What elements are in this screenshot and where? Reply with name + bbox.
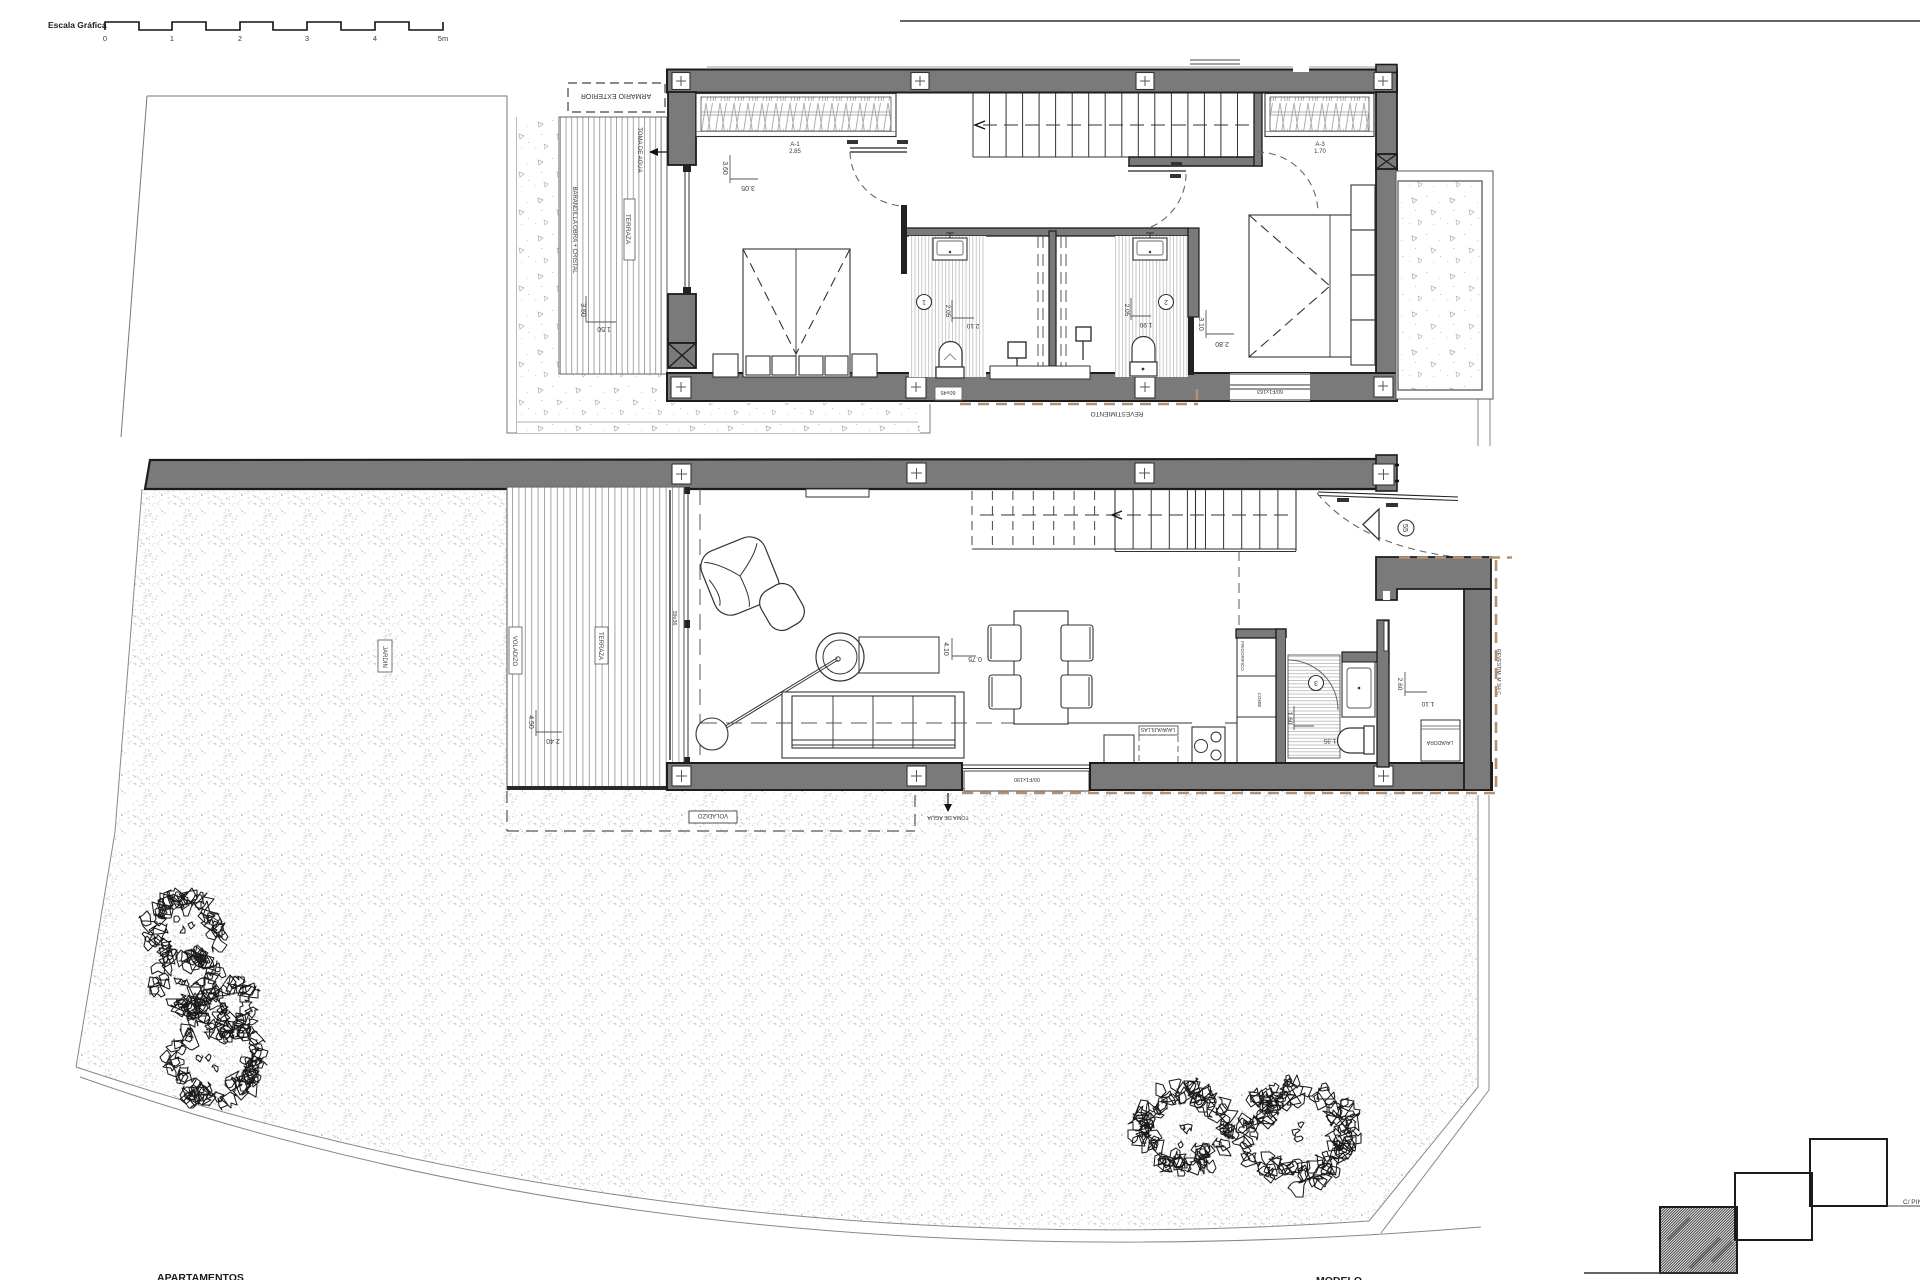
svg-text:0.75: 0.75 (968, 655, 982, 662)
svg-text:55: 55 (1401, 524, 1410, 532)
svg-text:VOLADIZO: VOLADIZO (511, 636, 517, 667)
svg-text:TERRAZA: TERRAZA (624, 214, 631, 245)
svg-text:4.50: 4.50 (527, 715, 534, 729)
svg-text:2.40: 2.40 (546, 737, 560, 744)
svg-text:0: 0 (103, 34, 107, 43)
svg-text:1.35: 1.35 (1323, 737, 1336, 744)
svg-text:2.85: 2.85 (789, 149, 801, 155)
svg-text:2.05: 2.05 (1123, 304, 1130, 317)
svg-text:5m: 5m (438, 34, 448, 43)
svg-text:1.60: 1.60 (1286, 712, 1293, 725)
svg-text:2: 2 (238, 34, 242, 43)
svg-text:APARTAMENTOS: APARTAMENTOS (157, 1272, 244, 1280)
svg-text:3.60: 3.60 (579, 303, 586, 317)
svg-text:1: 1 (170, 34, 174, 43)
svg-text:3.05: 3.05 (741, 184, 755, 191)
svg-text:2.60: 2.60 (1396, 678, 1403, 691)
svg-text:A-1: A-1 (790, 142, 800, 148)
svg-text:LAVAVAJILLAS: LAVAVAJILLAS (1140, 726, 1175, 732)
svg-text:1.50: 1.50 (597, 325, 611, 332)
svg-text:C/ PINAR: C/ PINAR (1903, 1199, 1920, 1206)
svg-text:A-3: A-3 (1315, 142, 1325, 148)
svg-text:4.10: 4.10 (942, 642, 949, 656)
svg-text:COMBI: COMBI (1257, 693, 1262, 708)
svg-text:TERRAZA: TERRAZA (597, 632, 603, 660)
svg-text:VOLADIZO: VOLADIZO (697, 812, 728, 818)
svg-text:ARMARIO EXTERIOR: ARMARIO EXTERIOR (581, 92, 651, 99)
svg-text:1.70: 1.70 (1314, 149, 1326, 155)
svg-text:39x36: 39x36 (671, 611, 677, 626)
svg-text:3: 3 (305, 34, 309, 43)
svg-text:3.60: 3.60 (721, 161, 728, 175)
svg-text:2.10: 2.10 (966, 322, 979, 329)
svg-text:4: 4 (373, 34, 377, 43)
svg-text:2.80: 2.80 (1215, 340, 1229, 347)
svg-text:60x45: 60x45 (941, 389, 956, 395)
svg-text:3: 3 (1314, 679, 1318, 686)
svg-text:60/F1x163: 60/F1x163 (1257, 388, 1283, 394)
svg-text:LAVADORA: LAVADORA (1426, 739, 1453, 745)
svg-text:MODELO: MODELO (1316, 1275, 1362, 1280)
svg-text:3.10: 3.10 (1197, 317, 1204, 331)
svg-text:REVESTIMIENTO: REVESTIMIENTO (1091, 410, 1144, 417)
svg-text:JARDIN: JARDIN (381, 646, 387, 668)
svg-text:1.90: 1.90 (1139, 321, 1152, 328)
svg-text:1: 1 (922, 298, 926, 305)
svg-text:BARANDILLA OBRA + CRISTAL: BARANDILLA OBRA + CRISTAL (571, 186, 577, 274)
svg-text:Escala Gráfica: Escala Gráfica (48, 20, 107, 30)
svg-text:1.10: 1.10 (1421, 700, 1434, 707)
svg-text:FRIGORIFICO: FRIGORIFICO (1240, 641, 1245, 671)
svg-text:2: 2 (1164, 298, 1168, 305)
svg-text:TOMA DE AGUA: TOMA DE AGUA (927, 814, 969, 820)
svg-text:00/F1x190: 00/F1x190 (1014, 776, 1040, 782)
svg-text:TOMA DE AGUA: TOMA DE AGUA (636, 127, 642, 172)
svg-text:2.05: 2.05 (944, 305, 951, 318)
